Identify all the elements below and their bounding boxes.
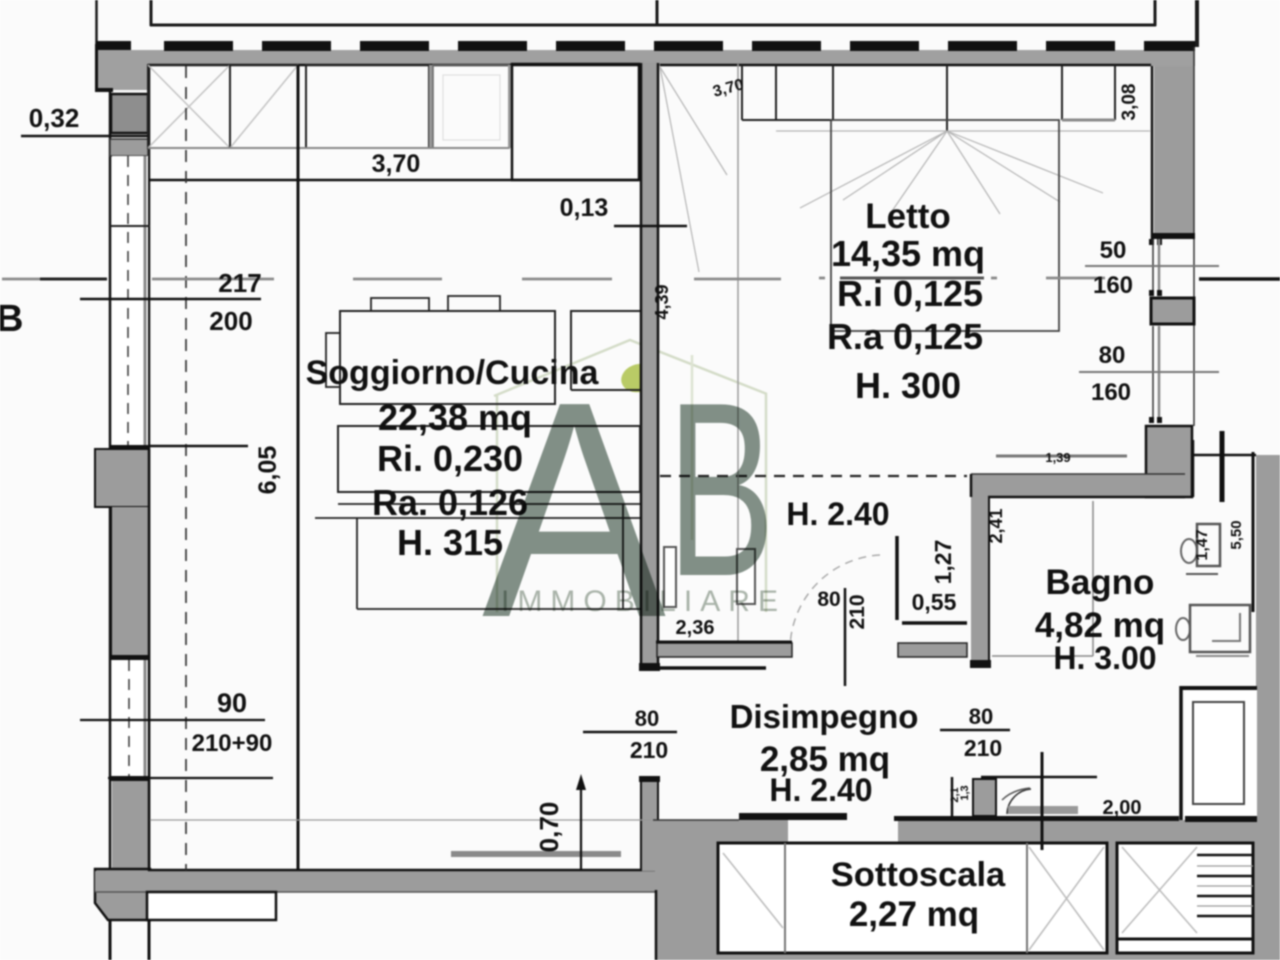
svg-text:80: 80 [1099, 342, 1126, 369]
svg-text:160: 160 [1091, 379, 1131, 406]
svg-text:90: 90 [217, 688, 247, 718]
svg-text:1,47: 1,47 [1194, 529, 1211, 560]
svg-text:H. 2.40: H. 2.40 [769, 772, 872, 808]
svg-text:1,27: 1,27 [930, 540, 956, 585]
svg-text:Sottoscala: Sottoscala [831, 856, 1006, 894]
svg-text:2,41: 2,41 [986, 508, 1006, 543]
svg-text:H. 300: H. 300 [855, 365, 961, 406]
svg-text:B: B [0, 298, 23, 340]
svg-text:80: 80 [635, 706, 659, 731]
svg-text:0,32: 0,32 [29, 103, 80, 133]
svg-text:14,35 mq: 14,35 mq [831, 233, 985, 274]
svg-text:200: 200 [209, 306, 252, 336]
svg-text:210: 210 [846, 594, 869, 629]
svg-text:R.i 0,125: R.i 0,125 [837, 273, 983, 314]
svg-text:A: A [482, 338, 667, 682]
svg-text:1,39: 1,39 [1045, 450, 1070, 465]
svg-text:50: 50 [1100, 237, 1127, 264]
svg-text:R.a 0,125: R.a 0,125 [827, 316, 983, 357]
svg-text:210+90: 210+90 [192, 730, 273, 757]
svg-text:2,00: 2,00 [1103, 797, 1142, 819]
svg-text:6,05: 6,05 [254, 446, 282, 495]
svg-text:210: 210 [630, 737, 668, 763]
svg-text:217: 217 [218, 268, 261, 298]
svg-text:0,70: 0,70 [534, 802, 564, 853]
svg-text:2,27 mq: 2,27 mq [849, 895, 979, 934]
svg-text:80: 80 [817, 588, 840, 611]
svg-text:Disimpegno: Disimpegno [730, 698, 919, 735]
svg-text:3,08: 3,08 [1119, 84, 1140, 121]
svg-text:5,50: 5,50 [1228, 520, 1245, 549]
svg-text:210: 210 [964, 735, 1002, 761]
svg-text:160: 160 [1093, 272, 1133, 299]
svg-text:H. 3.00: H. 3.00 [1053, 640, 1156, 676]
svg-text:Bagno: Bagno [1046, 563, 1155, 602]
svg-text:4,39: 4,39 [652, 284, 672, 319]
svg-text:80: 80 [969, 704, 993, 729]
svg-text:Letto: Letto [865, 197, 951, 236]
svg-text:3,70: 3,70 [372, 150, 421, 178]
svg-text:1,3: 1,3 [959, 785, 971, 800]
svg-text:0,55: 0,55 [912, 589, 957, 615]
svg-text:IMMOBILIARE: IMMOBILIARE [501, 585, 784, 618]
svg-text:H. 2.40: H. 2.40 [786, 496, 889, 532]
svg-text:0,13: 0,13 [560, 194, 609, 222]
